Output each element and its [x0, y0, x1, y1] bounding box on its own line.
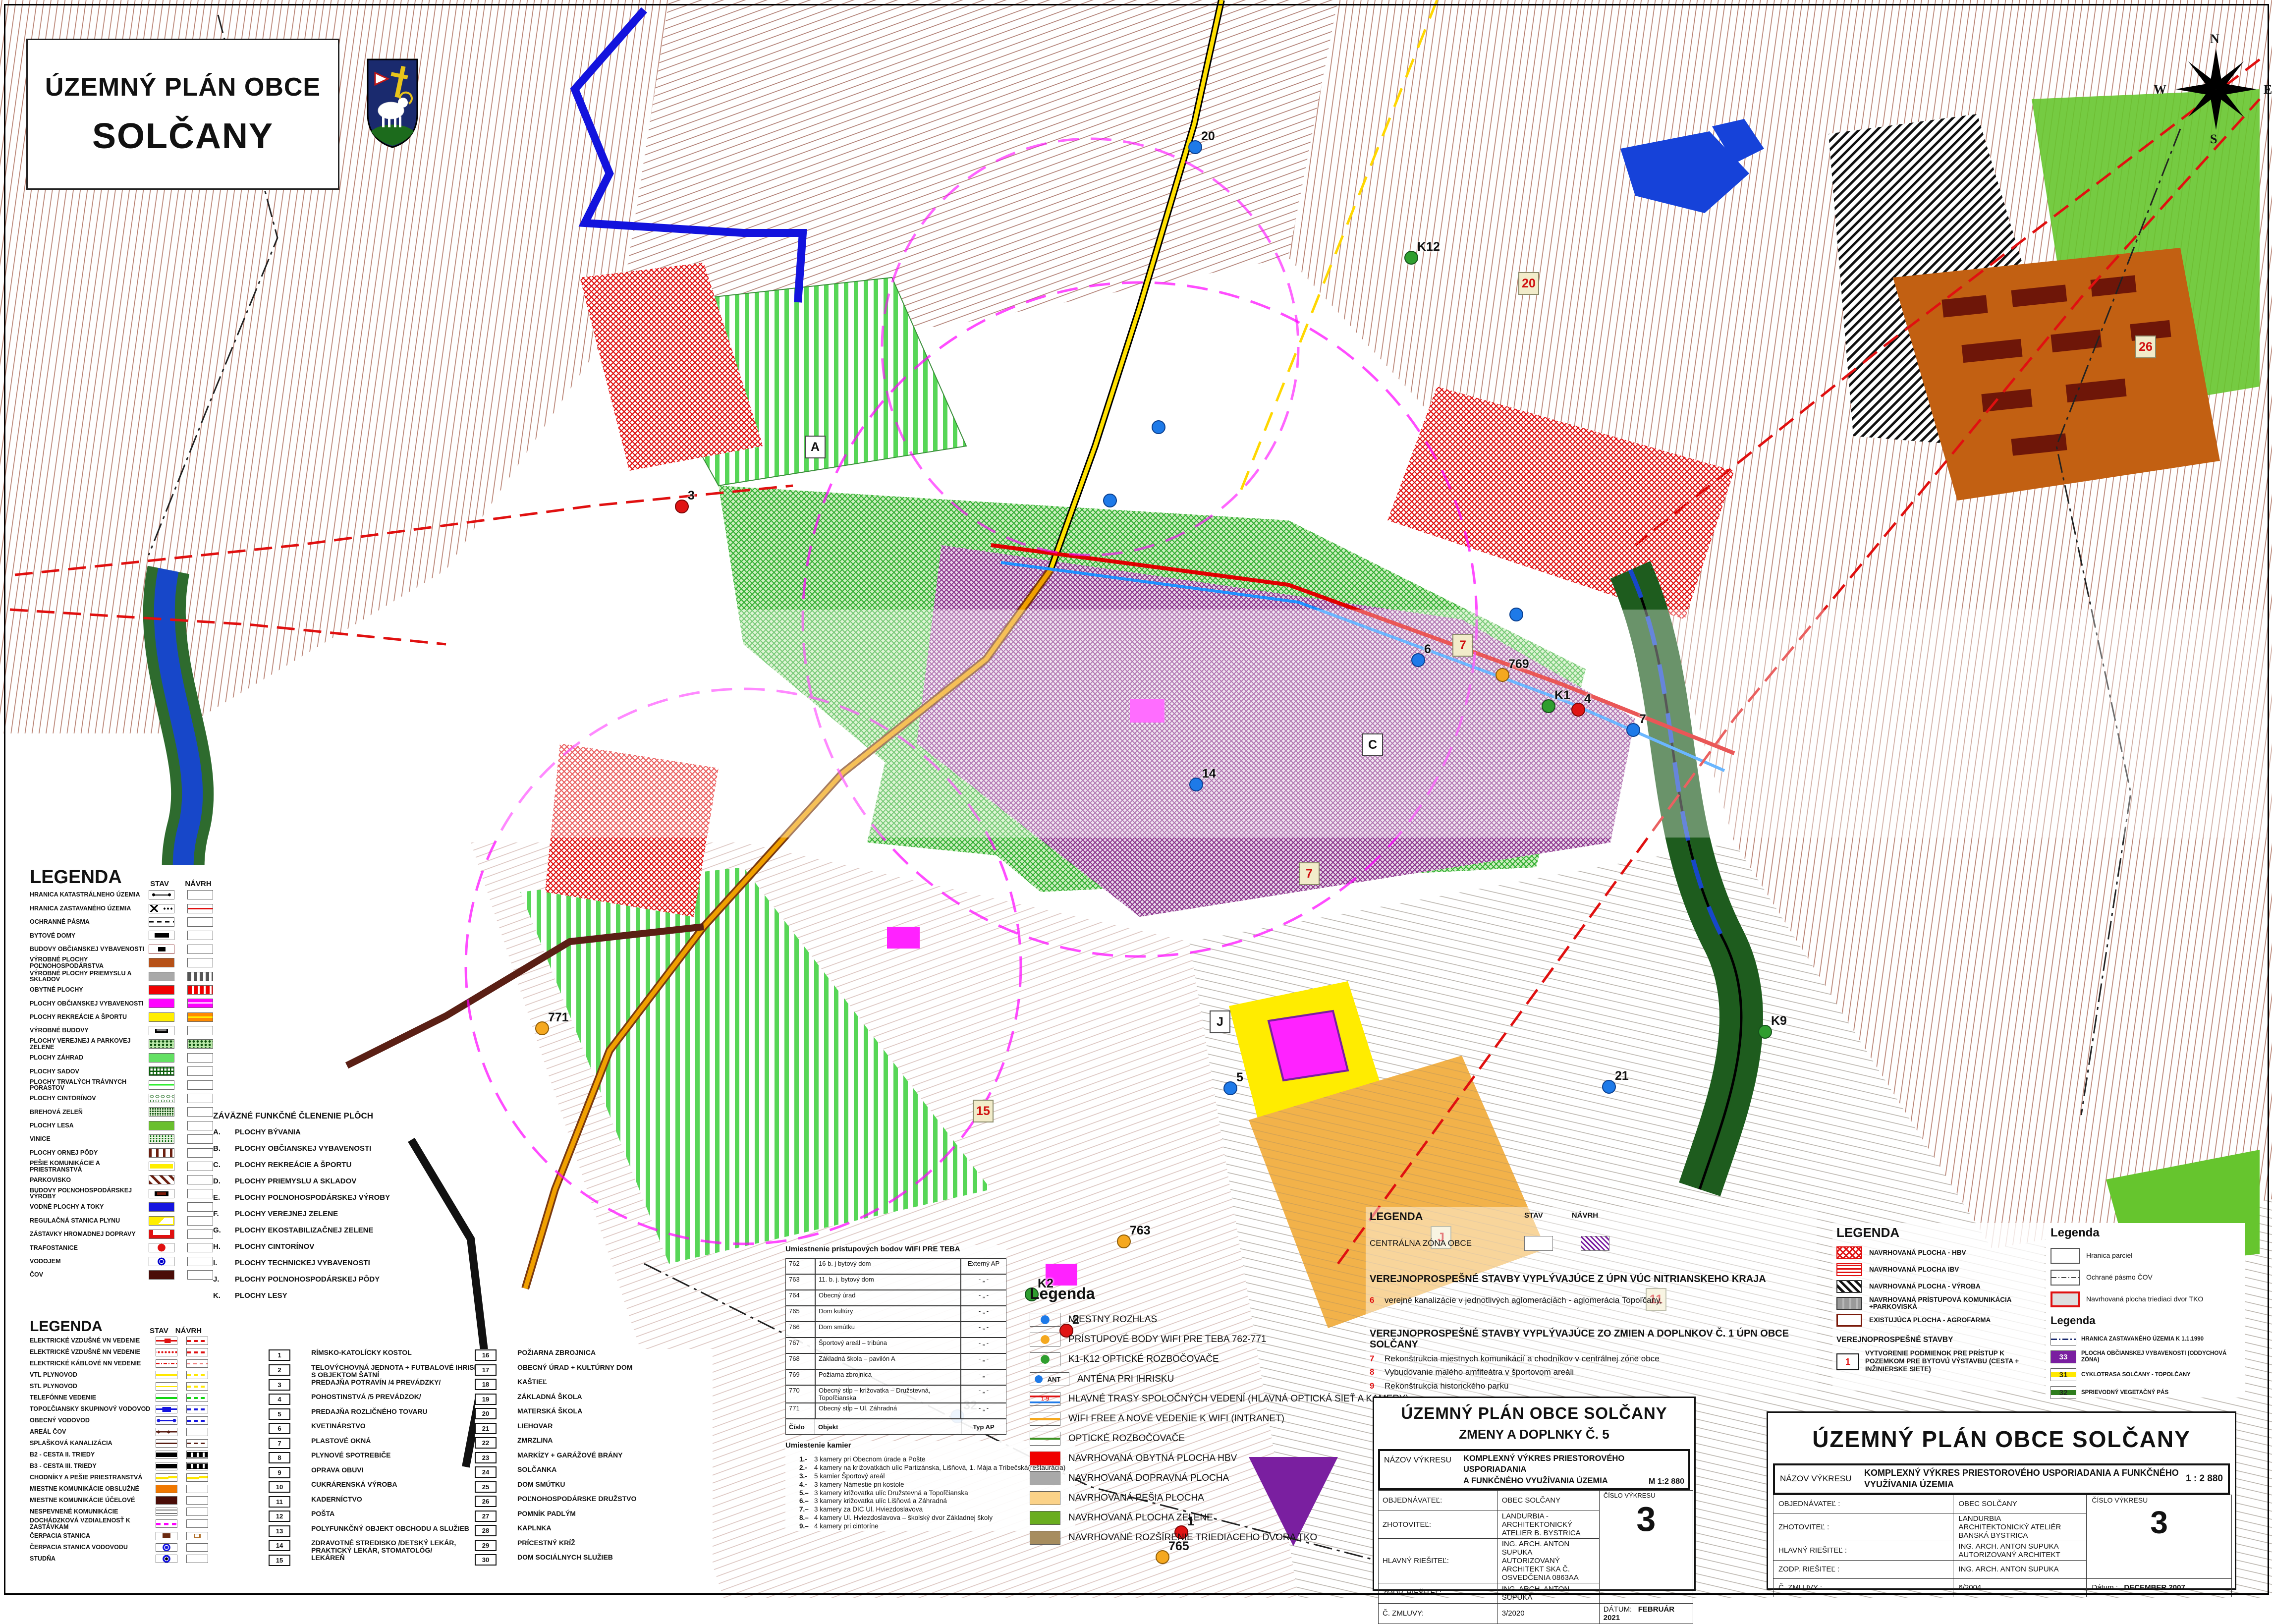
object-number: 21: [475, 1423, 497, 1434]
rleg2-row2: 33 PLOCHA OBČIANSKEJ VYBAVENOSTI (ODDYCH…: [2050, 1348, 2245, 1366]
tbc-zodp: ING. ARCH. ANTON SUPUKA: [1497, 1583, 1599, 1603]
rleg1-label: NAVRHOVANÁ PLOCHA IBV: [1869, 1266, 1959, 1273]
legend-network-swatch: [1030, 1333, 1060, 1346]
legend2-stav-swatch: [156, 1428, 177, 1436]
legend1-stav-swatch: [149, 1270, 174, 1280]
wifi-cell-objekt: Dom kultúry: [815, 1306, 961, 1322]
zone-label: PLOCHY TECHNICKEJ VYBAVENOSTI: [235, 1259, 370, 1275]
legend2-row: ELEKTRICKÉ VZDUŠNÉ NN VEDENIE: [30, 1346, 233, 1358]
object-label: KAPLNKA: [517, 1524, 551, 1532]
legend2-row: TOPOĽČIANSKY SKUPINOVÝ VODOVOD: [30, 1403, 233, 1415]
object-row: 6 KVETINÁRSTVO: [269, 1422, 487, 1437]
object-number: 15: [269, 1555, 290, 1566]
legend1-label: ZÁSTAVKY HROMADNEJ DOPRAVY: [30, 1231, 146, 1237]
legend1-label: ČOV: [30, 1272, 146, 1278]
legend1-row: PEŠIE KOMUNIKÁCIE A PRIESTRANSTVÁ: [30, 1160, 233, 1173]
object-row: 5 PREDAJŇA ROZLIČNÉHO TOVARU: [269, 1408, 487, 1423]
rleg2-label2: HRANICA ZASTAVANÉHO ÚZEMIA K 1.1.1990: [2081, 1336, 2204, 1343]
legend1-stav-swatch: [149, 931, 174, 940]
object-number: 22: [475, 1437, 497, 1449]
object-label: ZDRAVOTNÉ STREDISKO /DETSKÝ LEKÁR, PRAKT…: [311, 1539, 487, 1554]
camera-text: 3 kamery za DIC Ul. Hviezdoslavova: [814, 1506, 923, 1514]
zone-key: K.: [213, 1291, 235, 1308]
rleg2-label2: SPRIEVODNÝ VEGETAČNÝ PÁS: [2081, 1390, 2168, 1396]
wifi-cell-cislo: 769: [785, 1369, 815, 1385]
legend2-label: ČERPACIA STANICA VODOVODU: [30, 1544, 155, 1551]
legend1-navrh-swatch: [187, 1026, 213, 1035]
main-title-line1: ÚZEMNÝ PLÁN OBCE: [45, 72, 321, 102]
wifi-col-typ: Typ AP: [961, 1419, 1006, 1435]
rleg1-row: NAVRHOVANÁ PLOCHA - HBV: [1836, 1244, 2045, 1261]
object-row: 1 RÍMSKO-KATOLÍCKY KOSTOL: [269, 1349, 487, 1364]
wifi-row: 764 Obecný úrad - „ -: [785, 1290, 1006, 1306]
rleg1-swatch: [1836, 1246, 1862, 1259]
legend2-navrh-swatch: [186, 1451, 208, 1459]
tbr-title: ÚZEMNÝ PLÁN OBCE SOLČANY: [1768, 1426, 2235, 1453]
legend1-row: PLOCHY TRVALÝCH TRÁVNYCH PORASTOV: [30, 1078, 233, 1091]
legend2-stav-swatch: [156, 1348, 177, 1356]
legend1-label: VODNÉ PLOCHY A TOKY: [30, 1204, 146, 1210]
legend1-row: PLOCHY ORNEJ PÔDY: [30, 1146, 233, 1159]
legend1-stav-swatch: [149, 958, 174, 967]
object-number: 12: [269, 1511, 290, 1522]
object-row: 16 POŽIARNA ZBROJNICA: [475, 1349, 713, 1364]
tbr-datum: DECEMBER 2007: [2124, 1583, 2185, 1592]
legend1-label: VINICE: [30, 1136, 146, 1142]
camera-number: 1.-: [799, 1456, 814, 1464]
object-number: 7: [269, 1438, 290, 1449]
legend2-stav-swatch: [156, 1359, 177, 1368]
legend2-stav-swatch: [156, 1519, 177, 1528]
legend1-row: PLOCHY CINTORÍNOV: [30, 1092, 233, 1105]
legend1-label: REGULAČNÁ STANICA PLYNU: [30, 1218, 146, 1224]
legend1-navrh-swatch: [187, 972, 213, 981]
zone-label: PLOCHY OBČIANSKEJ VYBAVENOSTI: [235, 1144, 371, 1161]
tbr-hlavny-label: HLAVNÝ RIEŠITEĽ :: [1773, 1541, 1953, 1560]
object-row: 17 OBECNÝ ÚRAD + KULTÚRNY DOM: [475, 1364, 713, 1379]
legend1-navrh-swatch: [187, 1230, 213, 1239]
zone-item: F. PLOCHY VEREJNEJ ZELENE: [213, 1210, 595, 1226]
tbr-zmluvy-label: Č. ZMLUVY :: [1773, 1578, 1953, 1597]
legend1-stav-swatch: [149, 1162, 174, 1171]
legend2-col-navrh: NÁVRH: [175, 1327, 202, 1335]
legend1-stav-swatch: [149, 972, 174, 981]
legend1-row: VINICE: [30, 1132, 233, 1146]
zones-title: ZÁVÄZNÉ FUNKČNÉ ČLENENIE PLÔCH: [213, 1111, 595, 1121]
main-title-line2: SOLČANY: [92, 116, 274, 157]
zone-label: PLOCHY POĽNOHOSPODÁRSKEJ VÝROBY: [235, 1193, 390, 1210]
legend2-stav-swatch: [156, 1485, 177, 1493]
object-number: 3: [269, 1379, 290, 1391]
tbc-nazov-label: NÁZOV VÝKRESU: [1384, 1453, 1463, 1486]
rleg1-public-item: VYTVORENIE PODMIENOK PRE PRÍSTUP K POZEM…: [1865, 1349, 2045, 1374]
object-label: CUKRÁRENSKÁ VÝROBA: [311, 1481, 397, 1488]
legend2-navrh-swatch: [186, 1382, 208, 1391]
legend1-navrh-swatch: [187, 1053, 213, 1063]
rleg1-title: LEGENDA: [1836, 1225, 2045, 1240]
legend1-label: VÝROBNÉ BUDOVY: [30, 1027, 146, 1034]
legend2-navrh-swatch: [186, 1405, 208, 1413]
legend2-stav-swatch: [156, 1416, 177, 1425]
object-number: 30: [475, 1554, 497, 1566]
wifi-cell-typ: Externý AP: [961, 1258, 1006, 1274]
compass-rose: N E S W: [2166, 40, 2266, 139]
legend-network-label: K1-K12 OPTICKÉ ROZBOČOVAČE: [1068, 1354, 1219, 1364]
legend2-label: B3 - CESTA III. TRIEDY: [30, 1463, 155, 1469]
rleg1-public-heading: VEREJNOPROSPEŠNÉ STAVBY: [1836, 1336, 2045, 1344]
object-row: 7 PLASTOVÉ OKNÁ: [269, 1437, 487, 1452]
legend1-stav-swatch: [149, 1230, 174, 1239]
object-label: ZMRZLINA: [517, 1437, 553, 1444]
rleg1-swatch: [1836, 1314, 1862, 1327]
legend1-navrh-swatch: [187, 1134, 213, 1144]
tbc-objednavatel-label: OBJEDNÁVATEĽ:: [1379, 1490, 1498, 1511]
legend1-navrh-swatch: [187, 917, 213, 927]
legend-parcels: Legenda Hranica parciel Ochrané pásmo ČO…: [2046, 1223, 2245, 1398]
title-block-center: ÚZEMNÝ PLÁN OBCE SOLČANY ZMENY A DOPLNKY…: [1373, 1397, 1696, 1591]
legend-network-swatch: [1030, 1352, 1060, 1366]
object-number: 16: [475, 1349, 497, 1361]
wifi-cell-cislo: 767: [785, 1338, 815, 1353]
legend2-label: NESPEVNENÉ KOMUNIKÁCIE: [30, 1509, 155, 1515]
object-number: 8: [269, 1452, 290, 1463]
legend1-navrh-swatch: [187, 1066, 213, 1076]
legend-network-swatch: ANT: [1030, 1372, 1069, 1386]
legend2-row: SPLAŠKOVÁ KANALIZÁCIA: [30, 1438, 233, 1449]
camera-text: 3 kamery križovatka ulíc Družstevná a To…: [814, 1489, 968, 1498]
legend1-row: BYTOVÉ DOMY: [30, 929, 233, 942]
legend1-row: OBYTNÉ PLOCHY: [30, 983, 233, 997]
wifi-cell-typ: - „ -: [961, 1322, 1006, 1338]
legend1-row: VODNÉ PLOCHY A TOKY: [30, 1200, 233, 1214]
wifi-row: 762 16 b. j bytový dom Externý AP: [785, 1258, 1006, 1274]
wifi-cell-objekt: Požiarna zbrojnica: [815, 1369, 961, 1385]
object-label: OPRAVA OBUVI: [311, 1466, 364, 1474]
legend1-navrh-swatch: [187, 904, 213, 913]
rleg1-public-num: 1: [1836, 1353, 1859, 1370]
legend2-label: MIESTNE KOMUNIKÁCIE OBSLUŽNÉ: [30, 1486, 155, 1492]
legend2-stav-swatch: [156, 1462, 177, 1470]
legend-network-label: WIFI FREE A NOVÉ VEDENIE K WIFI (INTRANE…: [1068, 1414, 1284, 1424]
legend-network-swatch: [1030, 1491, 1060, 1505]
wifi-cell-typ: - „ -: [961, 1290, 1006, 1306]
wifi-row: 769 Požiarna zbrojnica - „ -: [785, 1369, 1006, 1385]
wifi-cell-cislo: 770: [785, 1385, 815, 1403]
camera-number: 3.-: [799, 1472, 814, 1481]
tbr-nazov: KOMPLEXNÝ VÝKRES PRIESTOROVÉHO USPORIADA…: [1864, 1467, 2181, 1491]
camera-number: 6.–: [799, 1497, 814, 1506]
legend2-navrh-swatch: [186, 1555, 208, 1563]
rleg2-swatch2-num: 31: [2059, 1371, 2068, 1379]
legend2-label: B2 - CESTA II. TRIEDY: [30, 1452, 155, 1458]
object-label: DOM SOCIÁLNYCH SLUŽIEB: [517, 1554, 613, 1561]
rleg1-swatch: [1836, 1297, 1862, 1310]
legend1-navrh-swatch: [187, 1107, 213, 1117]
zone-key: G.: [213, 1226, 235, 1242]
legend1-stav-swatch: [149, 890, 174, 899]
legend-network-row: ANT ANTÉNA PRI IHRISKU: [1030, 1369, 1545, 1389]
legend1-navrh-swatch: [187, 945, 213, 954]
wifi-col-objekt: Objekt: [815, 1419, 961, 1435]
tbr-zodp: ING. ARCH. ANTON SUPUKA: [1953, 1560, 2087, 1578]
legend2-label: STL PLYNOVOD: [30, 1383, 155, 1390]
wifi-cell-objekt: Obecný stĺp – križovatka – Družstevná, T…: [815, 1385, 961, 1403]
camera-number: 2.-: [799, 1464, 814, 1472]
legend2-row: STL PLYNOVOD: [30, 1381, 233, 1392]
tbr-hlavny: ING. ARCH. ANTON SUPUKA: [1958, 1542, 2058, 1551]
legend1-stav-swatch: [149, 1202, 174, 1212]
zone-label: PLOCHY EKOSTABILIZAČNEJ ZELENE: [235, 1226, 373, 1242]
wifi-cell-objekt: Základná škola – pavilón A: [815, 1353, 961, 1369]
legend2-row: AREÁL ČOV: [30, 1426, 233, 1438]
legend1-navrh-swatch: [187, 1257, 213, 1266]
legend2-row: MIESTNE KOMUNIKÁCIE OBSLUŽNÉ: [30, 1483, 233, 1495]
legend2-navrh-swatch: [186, 1359, 208, 1368]
legend1-stav-swatch: [149, 1121, 174, 1130]
legend1-row: PLOCHY OBČIANSKEJ VYBAVENOSTI: [30, 997, 233, 1010]
legend1-row: PLOCHY ZÁHRAD: [30, 1051, 233, 1064]
zone-item: C. PLOCHY REKREÁCIE A ŠPORTU: [213, 1161, 595, 1177]
rleg2-swatch: [2050, 1248, 2080, 1264]
legend2-stav-swatch: [156, 1394, 177, 1402]
legend2-row: OBECNÝ VODOVOD: [30, 1415, 233, 1426]
compass-star-icon: [2166, 40, 2266, 139]
legend-network-label: NAVRHOVANÁ PLOCHA ZELENE: [1068, 1513, 1213, 1523]
zone-item: I. PLOCHY TECHNICKEJ VYBAVENOSTI: [213, 1259, 595, 1275]
legend2-stav-swatch: [156, 1496, 177, 1505]
legend1-label: BUDOVY POĽNOHOSPODÁRSKEJ VÝROBY: [30, 1187, 146, 1200]
legend1-label: PLOCHY ZÁHRAD: [30, 1055, 146, 1061]
camera-text: 4 kamery na križovatkách ulíc Partizánsk…: [814, 1464, 1065, 1472]
legend1-navrh-swatch: [187, 890, 213, 899]
legend2-label: ELEKTRICKÉ VZDUŠNÉ NN VEDENIE: [30, 1349, 155, 1355]
wifi-cell-cislo: 765: [785, 1306, 815, 1322]
legend1-row: HRANICA KATASTRÁLNEHO ÚZEMIA: [30, 888, 233, 901]
rleg2-title2: Legenda: [2050, 1314, 2245, 1327]
main-title-box: ÚZEMNÝ PLÁN OBCE SOLČANY: [26, 39, 339, 190]
legend-network-label: NAVRHOVANÁ DOPRAVNÁ PLOCHA: [1068, 1473, 1229, 1483]
zone-item: G. PLOCHY EKOSTABILIZAČNEJ ZELENE: [213, 1226, 595, 1242]
wifi-cell-cislo: 764: [785, 1290, 815, 1306]
zone-key: B.: [213, 1144, 235, 1161]
object-number: 11: [269, 1496, 290, 1508]
legend1-label: BREHOVÁ ZELEŇ: [30, 1109, 146, 1116]
legend1-navrh-swatch: [187, 958, 213, 967]
compass-s: S: [2210, 132, 2217, 147]
object-label: MATERSKÁ ŠKOLA: [517, 1407, 582, 1415]
swatch-inline-text: 1-9: [1041, 1396, 1049, 1402]
legend1-stav-swatch: [149, 945, 174, 954]
central-zone-navrh-swatch: [1581, 1236, 1609, 1251]
camera-number: 7.–: [799, 1506, 814, 1514]
object-row: 20 MATERSKÁ ŠKOLA: [475, 1407, 713, 1422]
legend-network-swatch: [1030, 1511, 1060, 1525]
legend-infrastructure: LEGENDA STAV NÁVRH ELEKTRICKÉ VZDUŠNÉ VN…: [25, 1317, 233, 1580]
rleg2-row2: 31 CYKLOTRASA SOLČANY - TOPOLČANY: [2050, 1366, 2245, 1384]
object-row: 26 POĽNOHOSPODÁRSKE DRUŽSTVO: [475, 1495, 713, 1510]
legend1-navrh-swatch: [187, 985, 213, 995]
legend2-label: MIESTNE KOMUNIKÁCIE ÚČELOVÉ: [30, 1497, 155, 1504]
object-number: 2: [269, 1364, 290, 1376]
rleg2-swatch2-num: 33: [2059, 1353, 2068, 1361]
wifi-row: 767 Športový areál – tribúna - „ -: [785, 1338, 1006, 1353]
tbc-zodp-label: ZODP. RIEŠITEĽ:: [1379, 1583, 1498, 1603]
rleg2-swatch2-num: 32: [2059, 1389, 2068, 1397]
legend1-col-stav: STAV: [146, 880, 173, 888]
legend1-stav-swatch: [149, 1189, 174, 1198]
object-row: 13 POLYFUNKČNÝ OBJEKT OBCHODU A SLUŽIEB: [269, 1525, 487, 1540]
legend1-navrh-swatch: [187, 1202, 213, 1212]
object-label: KADERNÍCTVO: [311, 1496, 362, 1503]
legend1-row: PLOCHY LESA: [30, 1119, 233, 1132]
legend1-label: BYTOVÉ DOMY: [30, 933, 146, 939]
legend2-navrh-swatch: [186, 1532, 208, 1540]
tbr-zhotovitel-label: ZHOTOVITEĽ :: [1773, 1513, 1953, 1541]
object-number: 23: [475, 1452, 497, 1463]
legend2-label: STUDŇA: [30, 1556, 155, 1562]
legend1-label: PARKOVISKO: [30, 1177, 146, 1183]
legend-network-title: Legenda: [1030, 1285, 1545, 1303]
legend1-label: OBYTNÉ PLOCHY: [30, 987, 146, 993]
legend1-stav-swatch: [149, 1039, 174, 1049]
compass-w: W: [2154, 82, 2166, 97]
object-label: ZÁKLADNÁ ŠKOLA: [517, 1393, 582, 1400]
wifi-col-cislo: Číslo: [786, 1419, 815, 1435]
object-label: RÍMSKO-KATOLÍCKY KOSTOL: [311, 1349, 412, 1356]
legend2-stav-swatch: [156, 1337, 177, 1345]
coat-of-arms: [365, 57, 420, 149]
wifi-cell-objekt: Športový areál – tribúna: [815, 1338, 961, 1353]
object-number: 14: [269, 1540, 290, 1551]
object-row: 3 PREDAJŇA POTRAVÍN /4 PREVÁDZKY/: [269, 1379, 487, 1394]
object-label: PRÍCESTNÝ KRÍŽ: [517, 1539, 575, 1547]
object-row: 25 DOM SMÚTKU: [475, 1481, 713, 1496]
legend2-label: ČERPACIA STANICA: [30, 1533, 155, 1539]
tbc-hlavny-sub: AUTORIZOVANÝ ARCHITEKT SKA Č. OSVEDČENIA…: [1502, 1557, 1579, 1582]
legend1-row: BUDOVY POĽNOHOSPODÁRSKEJ VÝROBY: [30, 1187, 233, 1200]
legend1-stav-swatch: [149, 1080, 174, 1090]
legend2-stav-swatch: [156, 1543, 177, 1552]
legend1-row: VÝROBNÉ PLOCHY PRIEMYSLU A SKLADOV: [30, 969, 233, 983]
tbr-cislo-label: ČÍSLO VÝKRESU: [2092, 1496, 2226, 1504]
legend2-row: ČERPACIA STANICA: [30, 1530, 233, 1542]
rleg2-row: Hranica parciel: [2050, 1245, 2245, 1267]
object-row: 15 LEKÁREŇ: [269, 1554, 487, 1569]
objects-list-1: 1 RÍMSKO-KATOLÍCKY KOSTOL 2 TELOVÝCHOVNÁ…: [269, 1349, 487, 1569]
camera-text: 3 kamery pri Obecnom úrade a Pošte: [814, 1456, 925, 1464]
legend1-row: VÝROBNÉ BUDOVY: [30, 1024, 233, 1037]
rleg2-swatch2: [2050, 1333, 2076, 1345]
rleg2-label: Ochrané pásmo ČOV: [2086, 1274, 2153, 1281]
legend1-row: ZÁSTAVKY HROMADNEJ DOPRAVY: [30, 1228, 233, 1241]
legend1-label: HRANICA ZASTAVANÉHO ÚZEMIA: [30, 905, 146, 912]
legend-network-label: PRÍSTUPOVÉ BODY WIFI PRE TEBA 762-771: [1068, 1335, 1267, 1344]
object-number: 4: [269, 1394, 290, 1405]
zone-item: H. PLOCHY CINTORÍNOV: [213, 1242, 595, 1259]
legend2-row: ČERPACIA STANICA VODOVODU: [30, 1542, 233, 1553]
legend1-navrh-swatch: [187, 1012, 213, 1022]
zone-label: PLOCHY PRIEMYSLU A SKLADOV: [235, 1177, 356, 1193]
tbr-hlavny-sub: AUTORIZOVANÝ ARCHITEKT: [1958, 1551, 2060, 1559]
legend2-label: TOPOĽČIANSKY SKUPINOVÝ VODOVOD: [30, 1406, 155, 1412]
rleg2-swatch: [2050, 1291, 2080, 1307]
legend1-label: PLOCHY VEREJNEJ A PARKOVEJ ZELENE: [30, 1038, 146, 1050]
zone-label: PLOCHY REKREÁCIE A ŠPORTU: [235, 1161, 351, 1177]
object-number: 13: [269, 1525, 290, 1537]
legend1-row: TRAFOSTANICE: [30, 1241, 233, 1254]
legend1-stav-swatch: [149, 1243, 174, 1252]
tbr-cislo: 3: [2092, 1504, 2226, 1541]
object-number: 24: [475, 1466, 497, 1478]
zone-item: J. PLOCHY POĽNOHOSPODÁRSKEJ PÔDY: [213, 1275, 595, 1291]
object-row: 19 ZÁKLADNÁ ŠKOLA: [475, 1393, 713, 1408]
legend1-row: OCHRANNÉ PÁSMA: [30, 915, 233, 929]
legend1-stav-swatch: [149, 1134, 174, 1144]
wifi-table: Číslo Objekt Typ AP: [785, 1419, 1006, 1435]
object-number: 28: [475, 1525, 497, 1536]
central-zone-stav-swatch: [1524, 1236, 1553, 1251]
legend-network-label: NAVRHOVANÁ OBYTNÁ PLOCHA HBV: [1068, 1454, 1237, 1463]
tbc-objednavatel: OBEC SOLČANY: [1497, 1490, 1599, 1511]
wifi-cell-typ: - „ -: [961, 1369, 1006, 1385]
camera-number: 9.–: [799, 1522, 814, 1531]
object-label: LEKÁREŇ: [311, 1554, 345, 1562]
legend-network-row: K1-K12 OPTICKÉ ROZBOČOVAČE: [1030, 1349, 1545, 1369]
legend2-navrh-swatch: [186, 1496, 208, 1505]
legend2-title: LEGENDA: [30, 1318, 148, 1335]
object-number: 17: [475, 1364, 497, 1376]
object-label: KVETINÁRSTVO: [311, 1422, 366, 1430]
rleg2-swatch: [2050, 1270, 2080, 1286]
legend2-stav-swatch: [156, 1439, 177, 1448]
legend1-navrh-swatch: [187, 1121, 213, 1130]
wifi-cell-objekt: 11. b. j. bytový dom: [815, 1274, 961, 1290]
object-row: 24 SOLČANKA: [475, 1466, 713, 1481]
tbr-nazov-label: NÁZOV VÝKRESU: [1780, 1474, 1864, 1484]
legend2-label: TELEFÓNNE VEDENIE: [30, 1395, 155, 1401]
legend2-navrh-swatch: [186, 1394, 208, 1402]
tbc-hlavny-label: HLAVNÝ RIEŠITEĽ:: [1379, 1538, 1498, 1583]
legend1-label: PLOCHY OBČIANSKEJ VYBAVENOSTI: [30, 1001, 146, 1007]
tbc-nazov1: KOMPLEXNÝ VÝKRES PRIESTOROVÉHO USPORIADA…: [1463, 1454, 1624, 1474]
wifi-cell-cislo: 762: [785, 1258, 815, 1274]
legend2-stav-swatch: [156, 1473, 177, 1482]
zone-key: C.: [213, 1161, 235, 1177]
tbc-title: ÚZEMNÝ PLÁN OBCE SOLČANY: [1374, 1404, 1694, 1423]
legend2-navrh-swatch: [186, 1348, 208, 1356]
legend1-navrh-swatch: [187, 1094, 213, 1103]
central-zone-col-stav: STAV: [1524, 1211, 1543, 1220]
rleg2-title: Legenda: [2050, 1226, 2245, 1240]
object-number: 10: [269, 1481, 290, 1493]
zone-label: PLOCHY VEREJNEJ ZELENE: [235, 1210, 338, 1226]
legend-network-swatch: [1030, 1471, 1060, 1485]
object-row: 14 ZDRAVOTNÉ STREDISKO /DETSKÝ LEKÁR, PR…: [269, 1539, 487, 1554]
object-label: OBECNÝ ÚRAD + KULTÚRNY DOM: [517, 1364, 632, 1371]
legend2-navrh-swatch: [186, 1462, 208, 1470]
legend1-row: VÝROBNÉ PLOCHY POĽNOHOSPODÁRSTVA: [30, 956, 233, 969]
legend-network-label: MIESTNY ROZHLAS: [1068, 1315, 1157, 1325]
rleg2-swatch2: 31: [2050, 1368, 2076, 1381]
legend1-stav-swatch: [149, 985, 174, 995]
legend1-stav-swatch: [149, 904, 174, 913]
camera-text: 3 kamery križovatka ulíc Lišňová a Záhra…: [814, 1497, 947, 1506]
legend1-label: TRAFOSTANICE: [30, 1245, 146, 1251]
object-row: 9 OPRAVA OBUVI: [269, 1466, 487, 1481]
camera-number: 8.–: [799, 1514, 814, 1522]
zone-label: PLOCHY CINTORÍNOV: [235, 1242, 314, 1259]
legend1-navrh-swatch: [187, 1148, 213, 1158]
